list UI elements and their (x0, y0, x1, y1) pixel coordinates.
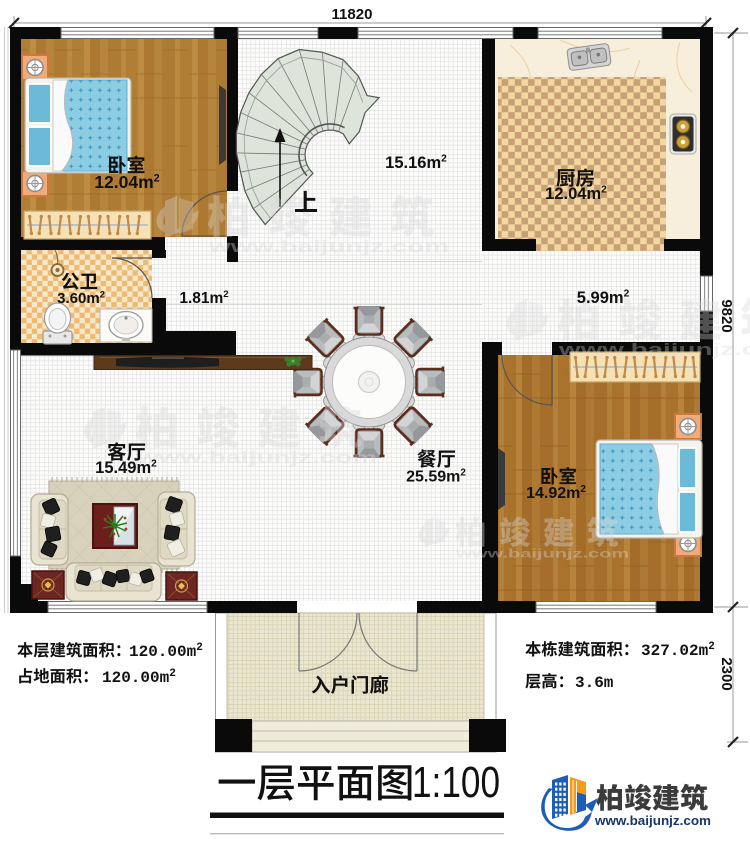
svg-text:120.00m2: 120.00m2 (129, 642, 203, 661)
svg-text:9820: 9820 (718, 299, 735, 332)
svg-text:1:100: 1:100 (412, 758, 500, 807)
svg-text:11820: 11820 (332, 6, 373, 23)
svg-text:25.59m2: 25.59m2 (406, 467, 466, 485)
svg-text:327.02m2: 327.02m2 (641, 641, 715, 660)
svg-text:1.81m2: 1.81m2 (179, 289, 228, 307)
svg-text:www.baijunjz.com: www.baijunjz.com (594, 813, 711, 828)
svg-text:5.99m2: 5.99m2 (577, 289, 630, 307)
svg-text:12.04m2: 12.04m2 (545, 185, 607, 203)
svg-text:14.92m2: 14.92m2 (526, 484, 586, 502)
svg-text:3.60m2: 3.60m2 (57, 289, 105, 307)
svg-text:3.6m: 3.6m (575, 674, 614, 692)
svg-text:2300: 2300 (718, 657, 735, 690)
svg-text:12.04m2: 12.04m2 (94, 172, 159, 192)
svg-text:15.49m2: 15.49m2 (95, 459, 157, 477)
svg-text:120.00m2: 120.00m2 (102, 668, 176, 687)
svg-text:15.16m2: 15.16m2 (385, 154, 447, 172)
